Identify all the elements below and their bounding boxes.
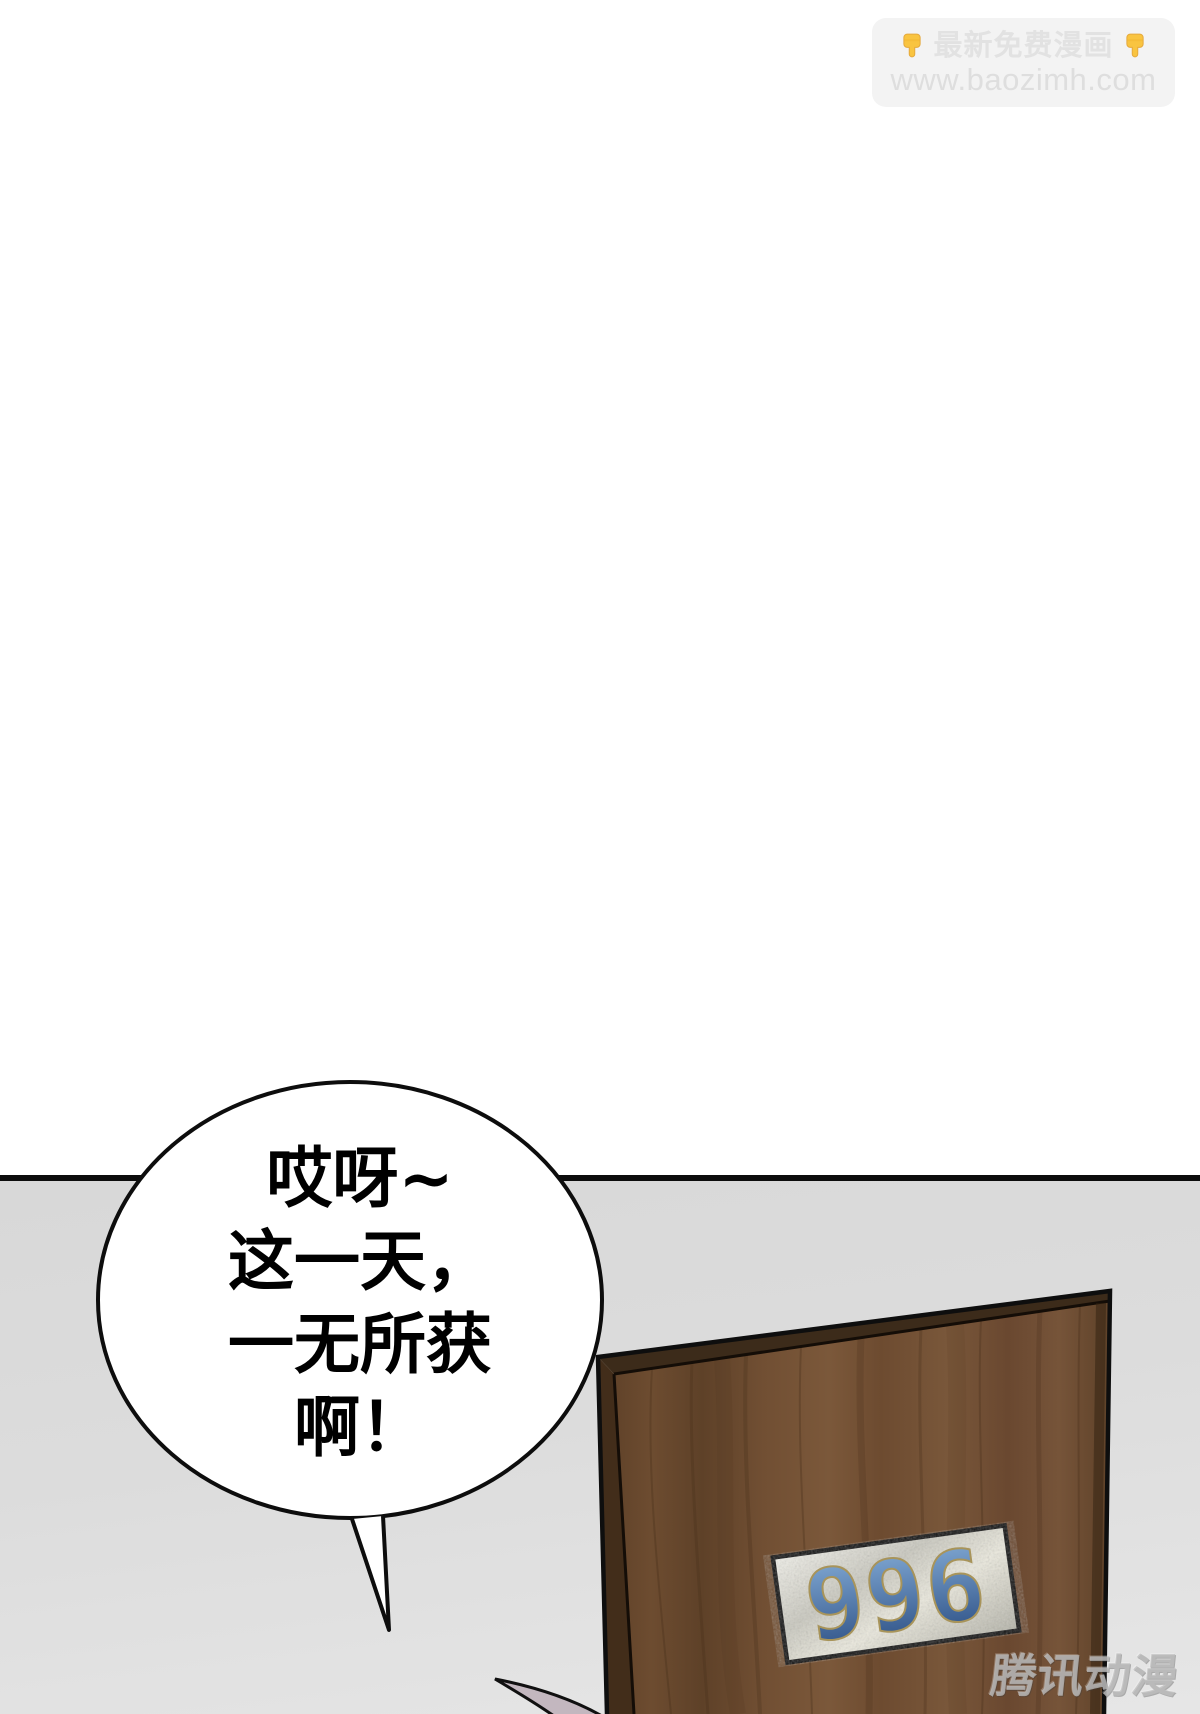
bubble-line-4: 啊！ <box>110 1386 610 1469</box>
bubble-line-2: 这一天， <box>110 1220 610 1303</box>
bubble-line-1: 哎呀~ <box>110 1137 610 1220</box>
bubble-line-3: 一无所获 <box>110 1303 610 1386</box>
site-watermark-card: 最新免费漫画 www.baozimh.com <box>872 18 1175 107</box>
character-hair <box>495 1679 602 1714</box>
publisher-watermark: 腾讯动漫 <box>988 1640 1183 1706</box>
site-watermark-url: www.baozimh.com <box>891 63 1157 96</box>
site-watermark-title: 最新免费漫画 <box>933 30 1113 62</box>
site-watermark-line1: 最新免费漫画 <box>897 30 1149 62</box>
speech-bubble-tail <box>352 1516 389 1630</box>
point-down-icon <box>897 31 927 61</box>
point-down-icon <box>1120 31 1150 61</box>
speech-bubble-text: 哎呀~ 这一天， 一无所获 啊！ <box>110 1137 610 1469</box>
comic-page: 996 哎呀~ 这一天， 一无所获 啊！ 最新免费漫画 <box>0 0 1200 1714</box>
